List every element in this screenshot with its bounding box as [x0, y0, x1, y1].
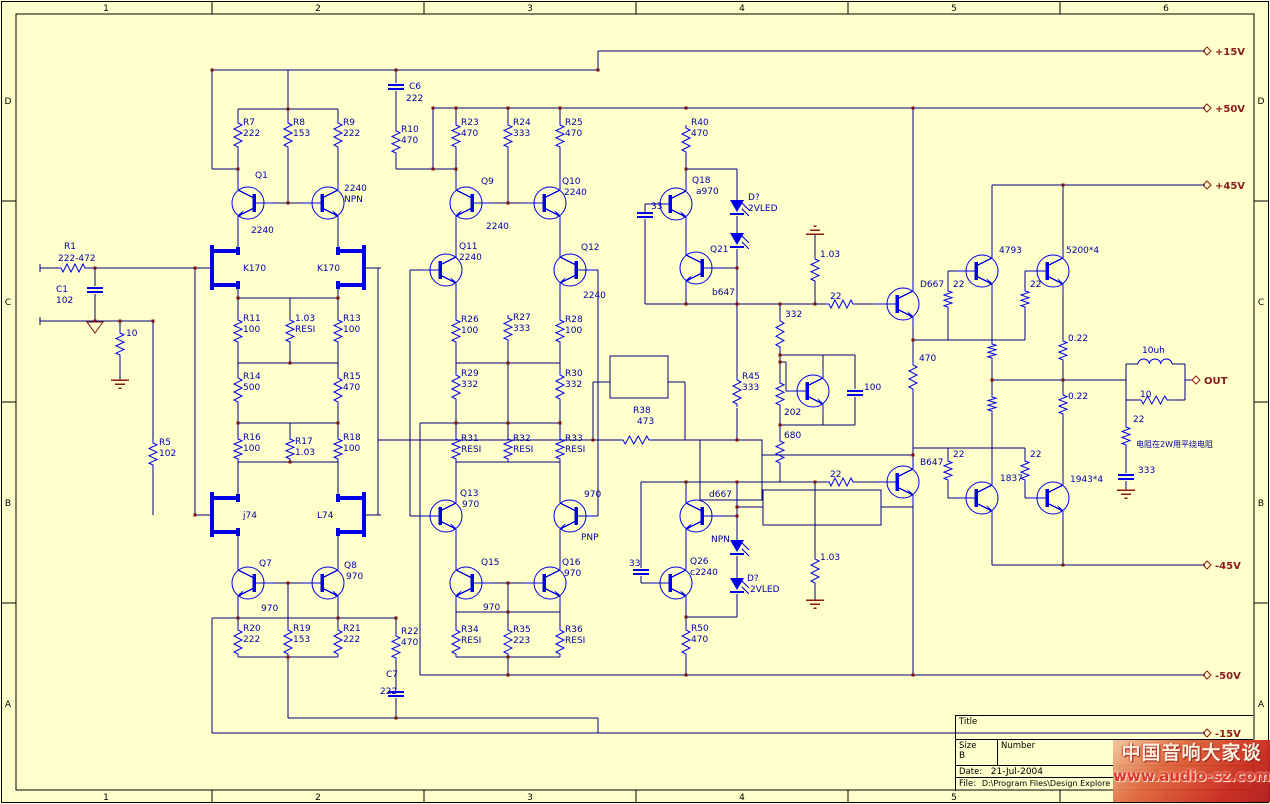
power-port: +45V	[1203, 181, 1245, 192]
power-port: -50V	[1203, 671, 1241, 682]
jfet-symbol	[338, 245, 381, 290]
transistor-symbol	[787, 369, 829, 413]
component-label: 470	[401, 638, 418, 648]
zone-number: 5	[951, 4, 957, 14]
power-port: -15V	[1203, 729, 1241, 740]
component-label: 680	[784, 431, 801, 441]
component-label: 470	[691, 635, 708, 645]
resistor-symbol	[504, 315, 512, 343]
component-label: R14	[243, 372, 261, 382]
component-label: 470	[401, 136, 418, 146]
resistor-symbol	[733, 377, 741, 407]
resistor-symbol	[944, 458, 952, 483]
component-label: R34	[461, 625, 479, 635]
resistor-symbol	[234, 627, 242, 657]
component-label: R20	[243, 624, 261, 634]
power-port: OUT	[1192, 376, 1228, 387]
schematic-canvas: 112233445566DDCCBBAA+15V+50V+45V-45V-50V…	[0, 0, 1270, 804]
component-label: 100	[461, 326, 478, 336]
component-label: Q26	[690, 557, 709, 567]
component-label: 2240	[459, 253, 482, 263]
ground-symbols	[87, 226, 1135, 608]
component-label: 2240	[486, 222, 509, 232]
component-label: R38	[633, 406, 651, 416]
led-symbol	[730, 540, 749, 556]
component-label: Q21	[710, 245, 729, 255]
component-label: 2240	[564, 188, 587, 198]
transistor-symbol	[680, 494, 722, 538]
component-label: D667	[920, 280, 944, 290]
transistor-symbol	[524, 181, 566, 225]
power-port: -45V	[1203, 561, 1241, 572]
component-label: Q18	[692, 176, 711, 186]
component-label: R21	[343, 624, 361, 634]
component-label: 1837	[1000, 474, 1023, 484]
component-label: Q12	[581, 243, 600, 253]
zone-letter: C	[5, 298, 11, 308]
component-label: 100	[243, 444, 260, 454]
resistor-symbol	[811, 556, 819, 586]
power-port-label: +15V	[1215, 47, 1245, 58]
zone-number: 1	[103, 793, 109, 803]
component-label: 1.03	[295, 448, 315, 458]
component-label: RESI	[295, 325, 315, 335]
component-label: j74	[242, 511, 257, 521]
component-label: R40	[691, 118, 709, 128]
component-label: 2VLED	[750, 585, 780, 595]
resistor-symbol	[334, 627, 342, 657]
component-label: R26	[461, 315, 479, 325]
zone-letter: D	[5, 97, 12, 107]
component-label: R35	[513, 625, 531, 635]
component-label: Q9	[481, 177, 494, 187]
component-label: 100	[343, 325, 360, 335]
zone-number: 4	[739, 4, 745, 14]
component-label: a970	[696, 187, 719, 197]
component-label: RESI	[565, 445, 585, 455]
component-label: R15	[343, 372, 361, 382]
component-label: 470	[691, 129, 708, 139]
component-label: 222	[406, 94, 423, 104]
component-label: R16	[243, 433, 261, 443]
component-label: K170	[317, 264, 340, 274]
component-label: R32	[513, 434, 531, 444]
transistor-symbol	[554, 494, 596, 538]
resistor-symbol	[116, 330, 124, 358]
component-label: c2240	[690, 568, 718, 578]
component-label: Q7	[259, 559, 272, 569]
component-label: 222	[343, 635, 360, 645]
resistor-symbol	[234, 436, 242, 462]
zone-letter: D	[1258, 97, 1265, 107]
transistor-symbol	[232, 181, 274, 225]
component-label: B647	[920, 458, 943, 468]
component-label: R9	[343, 118, 355, 128]
component-label: 473	[637, 417, 654, 427]
component-label: R33	[565, 434, 583, 444]
resistor-symbol	[504, 122, 512, 150]
transistor-symbol	[302, 561, 344, 605]
zone-number: 2	[315, 4, 321, 14]
component-label: 222-472	[58, 254, 96, 264]
component-label: d667	[709, 490, 732, 500]
component-label: 0.22	[1068, 392, 1088, 402]
resistor-symbol	[452, 627, 460, 657]
component-label: Q13	[460, 489, 479, 499]
component-label: R7	[243, 118, 255, 128]
component-label: L74	[317, 511, 334, 521]
schematic-sheet: Title Size B Number Revision Date: 21-Ju…	[0, 0, 1270, 804]
zone-number: 5	[951, 793, 957, 803]
component-label: D?	[747, 574, 759, 584]
component-label: 100	[864, 383, 881, 393]
component-label: C1	[56, 285, 68, 295]
transistor-symbol	[420, 494, 462, 538]
power-port-label: +50V	[1215, 104, 1245, 115]
component-label: 153	[293, 129, 310, 139]
component-label: R5	[159, 438, 171, 448]
component-label: 2VLED	[748, 204, 778, 214]
component-label: RESI	[461, 636, 481, 646]
component-label: RESI	[513, 445, 533, 455]
component-label: 332	[461, 380, 478, 390]
power-port-label: -45V	[1215, 561, 1241, 572]
resistor-symbol	[1059, 392, 1067, 417]
component-label: 970	[564, 569, 581, 579]
component-label: 332	[785, 310, 802, 320]
resistor-symbol	[286, 436, 294, 462]
component-label: 4793	[999, 246, 1022, 256]
component-label: R50	[691, 624, 709, 634]
component-label: 1.03	[295, 314, 315, 324]
resistor-symbol	[452, 317, 460, 345]
zone-number: 3	[527, 4, 533, 14]
resistor-symbol	[620, 436, 652, 444]
led-symbol	[730, 200, 749, 216]
transistor-symbol	[420, 248, 462, 292]
wires	[40, 51, 1205, 733]
resistor-symbol	[909, 362, 917, 392]
component-label: 100	[243, 325, 260, 335]
component-label: Q10	[562, 177, 581, 187]
component-label: R10	[401, 125, 419, 135]
component-label: 470	[565, 129, 582, 139]
resistor-symbol	[284, 120, 292, 150]
zone-number: 6	[1163, 4, 1169, 14]
component-label: 10uh	[1142, 346, 1165, 356]
led-symbol	[730, 233, 749, 249]
power-port: +15V	[1203, 47, 1245, 58]
component-label: 222	[380, 687, 397, 697]
resistor-symbol	[392, 128, 400, 156]
power-port-label: OUT	[1204, 376, 1228, 387]
resistor-symbol	[452, 122, 460, 150]
component-label: RESI	[461, 445, 481, 455]
component-label: 22	[1030, 280, 1041, 290]
component-label: 22	[830, 292, 841, 302]
component-label: C7	[386, 670, 398, 680]
component-label: 970	[462, 500, 479, 510]
resistor-symbol	[284, 627, 292, 657]
component-label: 33	[651, 202, 662, 212]
resistor-symbol	[811, 256, 819, 284]
resistor-symbol	[504, 627, 512, 657]
watermark: 中国音响大家谈 www.audio-sz.com	[1113, 740, 1270, 802]
zone-letter: A	[5, 700, 12, 710]
component-label: R11	[243, 314, 261, 324]
jfet-symbol	[338, 492, 381, 537]
resistor-symbol	[556, 372, 564, 402]
component-label: 22	[830, 470, 841, 480]
transistor-symbol	[554, 248, 596, 292]
component-label: 332	[565, 380, 582, 390]
component-label: 5200*4	[1066, 246, 1099, 256]
resistor-symbol	[776, 438, 784, 466]
zone-letter: B	[5, 499, 11, 509]
resistor-symbol	[682, 627, 690, 657]
component-label: R8	[293, 118, 305, 128]
power-ports: +15V+50V+45V-45V-50V-15VOUT	[1192, 47, 1245, 740]
component-label: 1.03	[820, 250, 840, 260]
resistor-symbol	[452, 372, 460, 402]
resistor-symbol	[58, 264, 88, 272]
component-label: R31	[461, 434, 479, 444]
component-label: 222	[243, 129, 260, 139]
component-label: R1	[64, 242, 76, 252]
resistor-symbol	[776, 380, 784, 408]
transistors	[232, 181, 1069, 605]
resistor-symbol	[556, 122, 564, 150]
component-label: NPN	[711, 535, 730, 545]
component-label: NPN	[344, 195, 363, 205]
component-label: D?	[748, 193, 760, 203]
transistor-symbol	[1027, 476, 1069, 520]
component-label: R23	[461, 118, 479, 128]
jfet-symbol	[195, 492, 238, 537]
transistor-symbol	[450, 181, 492, 225]
component-label: R25	[565, 118, 583, 128]
resistor-symbol	[149, 440, 157, 468]
transistor-symbol	[877, 282, 919, 326]
component-label: 470	[461, 129, 478, 139]
component-label: 970	[346, 572, 363, 582]
component-label: 333	[513, 129, 530, 139]
zone-number: 3	[527, 793, 533, 803]
component-label: 970	[584, 490, 601, 500]
component-label: 102	[56, 296, 73, 306]
component-label: 22	[1030, 450, 1041, 460]
component-label: 2240	[251, 226, 274, 236]
resistor-symbol	[286, 317, 294, 345]
power-port-label: -50V	[1215, 671, 1241, 682]
component-label: 470	[343, 383, 360, 393]
component-label: K170	[243, 264, 266, 274]
transistor-symbol	[302, 181, 344, 225]
component-label: 153	[293, 635, 310, 645]
component-label: 470	[919, 354, 936, 364]
component-label: 333	[742, 383, 759, 393]
power-port: +50V	[1203, 104, 1245, 115]
component-label: C6	[409, 82, 421, 92]
component-label: 202	[784, 408, 801, 418]
component-label: 2240	[583, 291, 606, 301]
component-label: R30	[565, 369, 583, 379]
resistors	[58, 120, 1170, 661]
resistor-symbol	[334, 436, 342, 462]
component-label: R45	[742, 372, 760, 382]
component-label: 333	[513, 324, 530, 334]
zone-number: 4	[739, 793, 745, 803]
inductor-symbol	[1138, 359, 1172, 364]
component-label: R17	[295, 437, 313, 447]
jfet-symbol	[195, 245, 238, 290]
zone-letter: B	[1258, 499, 1264, 509]
component-label: b647	[712, 288, 735, 298]
resistor-symbol	[944, 288, 952, 310]
watermark-url: www.audio-sz.com	[1113, 766, 1270, 786]
transistor-symbol	[956, 476, 998, 520]
component-label: 223	[513, 636, 530, 646]
zone-letter: C	[1258, 298, 1264, 308]
component-label: 222	[343, 129, 360, 139]
component-labels: R1222-472C110210R5102K170K170j74L74Q1224…	[56, 82, 1213, 697]
schematic-note: 电阻在2W用平绕电阻	[1136, 439, 1213, 449]
component-label: 102	[159, 449, 176, 459]
component-label: RESI	[565, 636, 585, 646]
resistor-symbol	[556, 627, 564, 657]
junction-dots	[94, 69, 1065, 720]
resistor-symbol	[988, 341, 996, 361]
resistor-symbol	[1021, 288, 1029, 310]
resistor-symbol	[234, 120, 242, 150]
component-label: R18	[343, 433, 361, 443]
watermark-chinese-text: 中国音响大家谈	[1113, 740, 1270, 766]
ground-triangle	[87, 322, 103, 333]
component-label: 10	[126, 329, 138, 339]
component-label: 33	[629, 559, 640, 569]
component-label: 10	[1140, 390, 1152, 400]
component-label: 100	[565, 326, 582, 336]
power-port-label: +45V	[1215, 181, 1245, 192]
resistor-symbol	[1059, 338, 1067, 363]
component-label: Q11	[459, 242, 478, 252]
resistor-symbol	[334, 375, 342, 405]
resistor-symbol	[392, 633, 400, 661]
component-label: R19	[293, 624, 311, 634]
zone-number: 2	[315, 793, 321, 803]
component-label: 0.22	[1068, 334, 1088, 344]
component-label: R22	[401, 627, 419, 637]
component-label: 2240	[344, 184, 367, 194]
sheet-border: 112233445566DDCCBBAA	[2, 2, 1269, 804]
component-label: Q16	[562, 558, 581, 568]
component-label: R29	[461, 369, 479, 379]
transistor-symbol	[650, 561, 692, 605]
resistor-symbol	[682, 125, 690, 155]
component-label: R27	[513, 313, 531, 323]
resistor-symbol	[556, 317, 564, 345]
component-label: 100	[343, 444, 360, 454]
resistor-symbol	[234, 375, 242, 405]
component-label: R28	[565, 315, 583, 325]
component-label: 1.03	[820, 553, 840, 563]
resistor-symbol	[334, 120, 342, 150]
component-label: 22	[953, 450, 964, 460]
component-label: R36	[565, 625, 583, 635]
resistor-symbol	[988, 394, 996, 414]
zone-number: 1	[103, 4, 109, 14]
component-label: PNP	[581, 533, 599, 543]
transistor-symbol	[524, 561, 566, 605]
component-label: 222	[243, 635, 260, 645]
component-label: Q1	[255, 171, 268, 181]
component-label: Q15	[481, 558, 500, 568]
resistor-symbol	[1122, 424, 1130, 448]
component-label: 333	[1138, 466, 1155, 476]
power-port-label: -15V	[1215, 729, 1241, 740]
component-label: 970	[483, 603, 500, 613]
resistor-symbol	[234, 317, 242, 345]
component-label: R24	[513, 118, 531, 128]
component-label: 500	[243, 383, 260, 393]
resistor-symbol	[334, 317, 342, 345]
component-label: Q8	[344, 561, 357, 571]
component-label: 22	[1133, 415, 1144, 425]
component-label: R13	[343, 314, 361, 324]
component-label: 970	[261, 604, 278, 614]
zone-letter: A	[1258, 700, 1265, 710]
component-label: 22	[953, 280, 964, 290]
resistor-symbol	[776, 318, 784, 350]
transistor-symbol	[877, 460, 919, 504]
component-label: 1943*4	[1070, 475, 1103, 485]
